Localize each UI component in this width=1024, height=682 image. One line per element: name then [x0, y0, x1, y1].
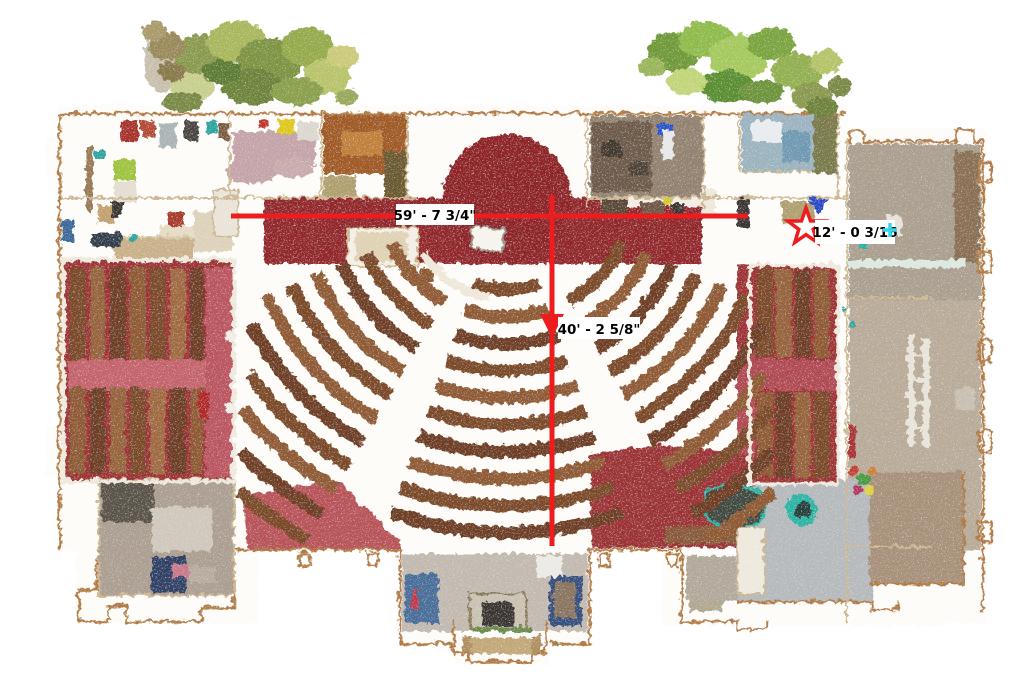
star-measurement-label[interactable]: 12' - 0 3/16 [812, 220, 897, 244]
pointcloud-floorplan-canvas[interactable]: 59' - 7 3/4" 40' - 2 5/8" 12' - 0 3/16 [0, 0, 1024, 682]
horizontal-measurement-text: 59' - 7 3/4" [394, 208, 477, 224]
altar-table [469, 224, 503, 249]
horizontal-measurement-label[interactable]: 59' - 7 3/4" [394, 204, 477, 225]
star-measurement-text: 12' - 0 3/16 [812, 225, 897, 241]
vertical-measurement-label[interactable]: 40' - 2 5/8" [558, 317, 641, 339]
vertical-measurement-text: 40' - 2 5/8" [558, 322, 641, 338]
floorplan-scene [44, 20, 989, 663]
tree-foliage [140, 20, 850, 115]
